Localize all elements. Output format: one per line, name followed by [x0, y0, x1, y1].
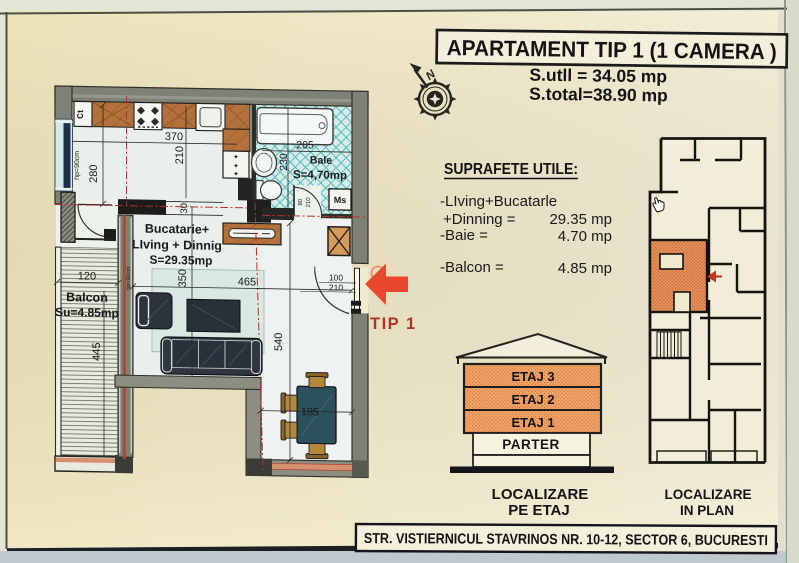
svg-text:Ct: Ct — [75, 110, 85, 119]
svg-text:100: 100 — [329, 272, 343, 282]
svg-text:hp=90cm: hp=90cm — [74, 151, 81, 180]
svg-text:SUPRAFETE UTILE:: SUPRAFETE UTILE: — [444, 161, 578, 178]
svg-text:205: 205 — [296, 139, 314, 151]
svg-text:370: 370 — [165, 131, 183, 143]
svg-text:S.total=38.90 mp: S.total=38.90 mp — [529, 84, 668, 106]
svg-text:S=4,70mp: S=4,70mp — [293, 169, 347, 182]
svg-text:29.35 mp: 29.35 mp — [549, 211, 612, 228]
svg-text:280: 280 — [88, 164, 100, 183]
svg-text:4.70 mp: 4.70 mp — [558, 228, 612, 245]
svg-text:210: 210 — [329, 282, 343, 292]
svg-text:PE ETAJ: PE ETAJ — [508, 502, 569, 519]
svg-text:Su=4.85mp: Su=4.85mp — [55, 305, 119, 320]
svg-text:-Baie =: -Baie = — [440, 227, 488, 244]
svg-text:350: 350 — [177, 269, 189, 288]
svg-text:120: 120 — [78, 270, 96, 282]
svg-text:IN PLAN: IN PLAN — [680, 503, 734, 518]
svg-text:LOCALIZARE: LOCALIZARE — [492, 486, 589, 503]
svg-text:ETAJ 1: ETAJ 1 — [511, 415, 554, 430]
svg-text:TIP 1: TIP 1 — [370, 315, 417, 333]
svg-text:✦: ✦ — [233, 153, 239, 161]
svg-text:LIving + Dinnig: LIving + Dinnig — [132, 237, 222, 253]
svg-text:STR. VISTIERNICUL STAVRINOS NR: STR. VISTIERNICUL STAVRINOS NR. 10-12, S… — [364, 531, 768, 549]
svg-text:Bucatarie+: Bucatarie+ — [145, 222, 209, 237]
svg-text:540: 540 — [273, 333, 285, 352]
svg-text:✦: ✦ — [233, 170, 239, 178]
svg-text:30: 30 — [179, 203, 190, 214]
svg-text:230: 230 — [278, 153, 290, 171]
svg-text:Ms: Ms — [334, 195, 347, 205]
svg-text:✦: ✦ — [233, 162, 239, 170]
svg-text:ETAJ 2: ETAJ 2 — [511, 392, 554, 407]
svg-text:PARTER: PARTER — [502, 437, 560, 452]
svg-text:-LIving+Bucatarle: -LIving+Bucatarle — [440, 193, 557, 210]
svg-text:4.85 mp: 4.85 mp — [558, 260, 612, 277]
svg-text:APARTAMENT TIP 1 (1 CAMERA ): APARTAMENT TIP 1 (1 CAMERA ) — [447, 35, 777, 64]
svg-text:LOCALIZARE: LOCALIZARE — [665, 487, 752, 502]
svg-text:210: 210 — [174, 146, 186, 165]
svg-text:Balcon: Balcon — [66, 290, 108, 305]
svg-text:80: 80 — [298, 198, 304, 205]
svg-text:465: 465 — [238, 276, 256, 288]
svg-text:+Dinning =: +Dinning = — [443, 211, 516, 228]
svg-text:445: 445 — [91, 342, 103, 361]
svg-text:ETAJ 3: ETAJ 3 — [511, 369, 554, 384]
svg-text:-Balcon =: -Balcon = — [440, 259, 504, 276]
svg-text:hp=90cm: hp=90cm — [126, 266, 132, 289]
svg-text:S=29.35mp: S=29.35mp — [149, 253, 212, 268]
svg-text:Bale: Bale — [310, 154, 332, 166]
svg-text:185: 185 — [301, 406, 319, 418]
svg-text:210: 210 — [306, 197, 312, 208]
